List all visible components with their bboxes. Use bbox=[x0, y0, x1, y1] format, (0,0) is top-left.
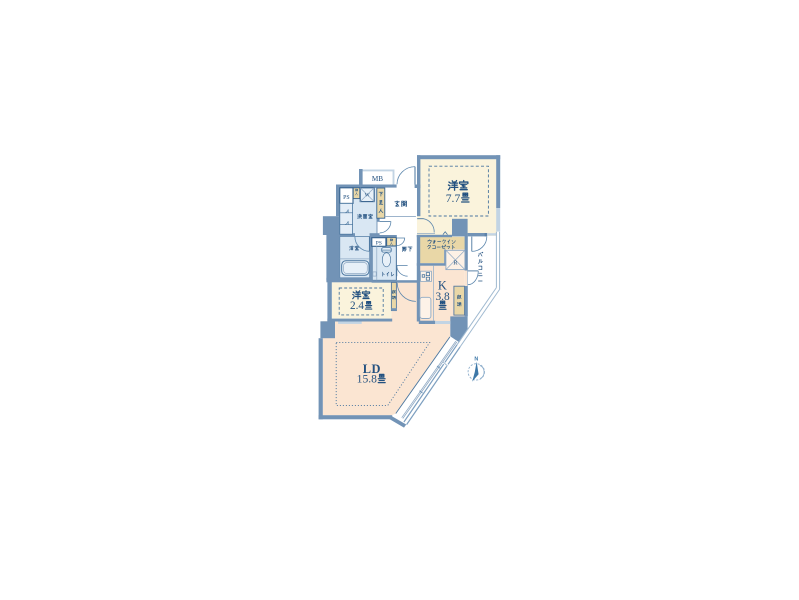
svg-text:W: W bbox=[365, 192, 370, 198]
svg-text:R: R bbox=[453, 259, 458, 266]
svg-text:N: N bbox=[474, 357, 478, 363]
svg-text:MB: MB bbox=[372, 175, 383, 183]
svg-text:2.4: 2.4 bbox=[350, 300, 364, 312]
svg-text:15.8: 15.8 bbox=[357, 373, 377, 386]
svg-text:PS: PS bbox=[343, 195, 349, 201]
svg-text:PS: PS bbox=[376, 240, 382, 246]
svg-text:7.7: 7.7 bbox=[446, 192, 461, 205]
